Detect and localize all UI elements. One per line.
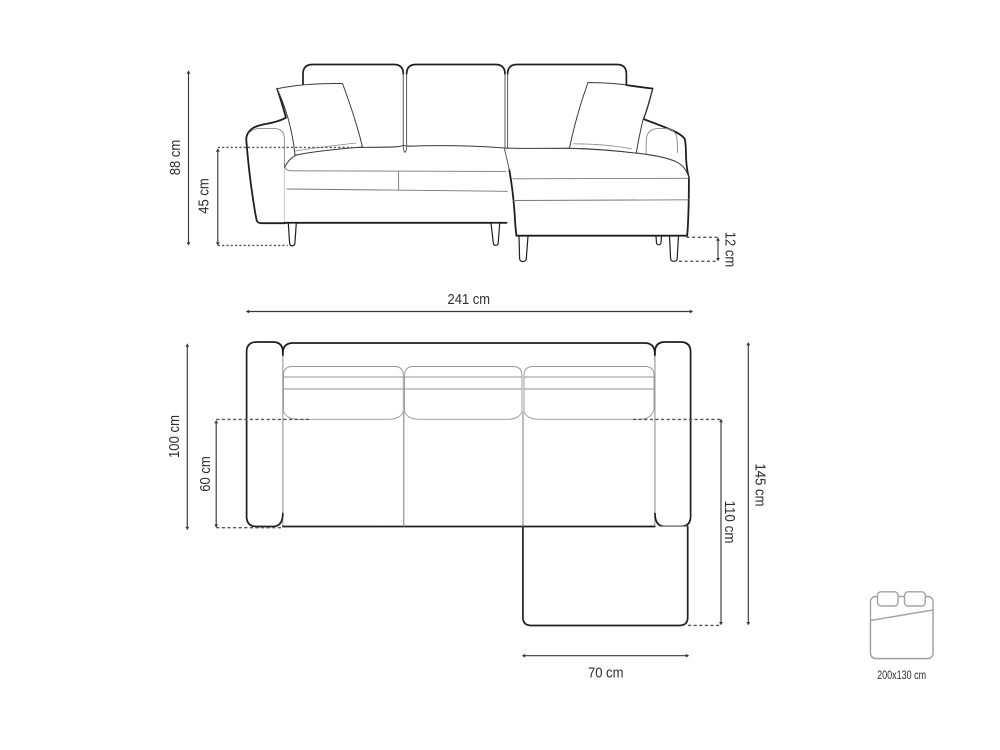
svg-text:12 cm: 12 cm [721,232,737,268]
svg-text:100 cm: 100 cm [167,415,183,458]
svg-text:45 cm: 45 cm [197,178,213,214]
svg-text:70 cm: 70 cm [588,665,624,681]
svg-text:60 cm: 60 cm [198,456,214,492]
svg-text:110 cm: 110 cm [721,501,737,544]
svg-text:241 cm: 241 cm [448,292,491,308]
svg-text:200x130 cm: 200x130 cm [877,668,926,682]
svg-text:88 cm: 88 cm [168,140,184,176]
svg-text:145 cm: 145 cm [752,464,768,507]
